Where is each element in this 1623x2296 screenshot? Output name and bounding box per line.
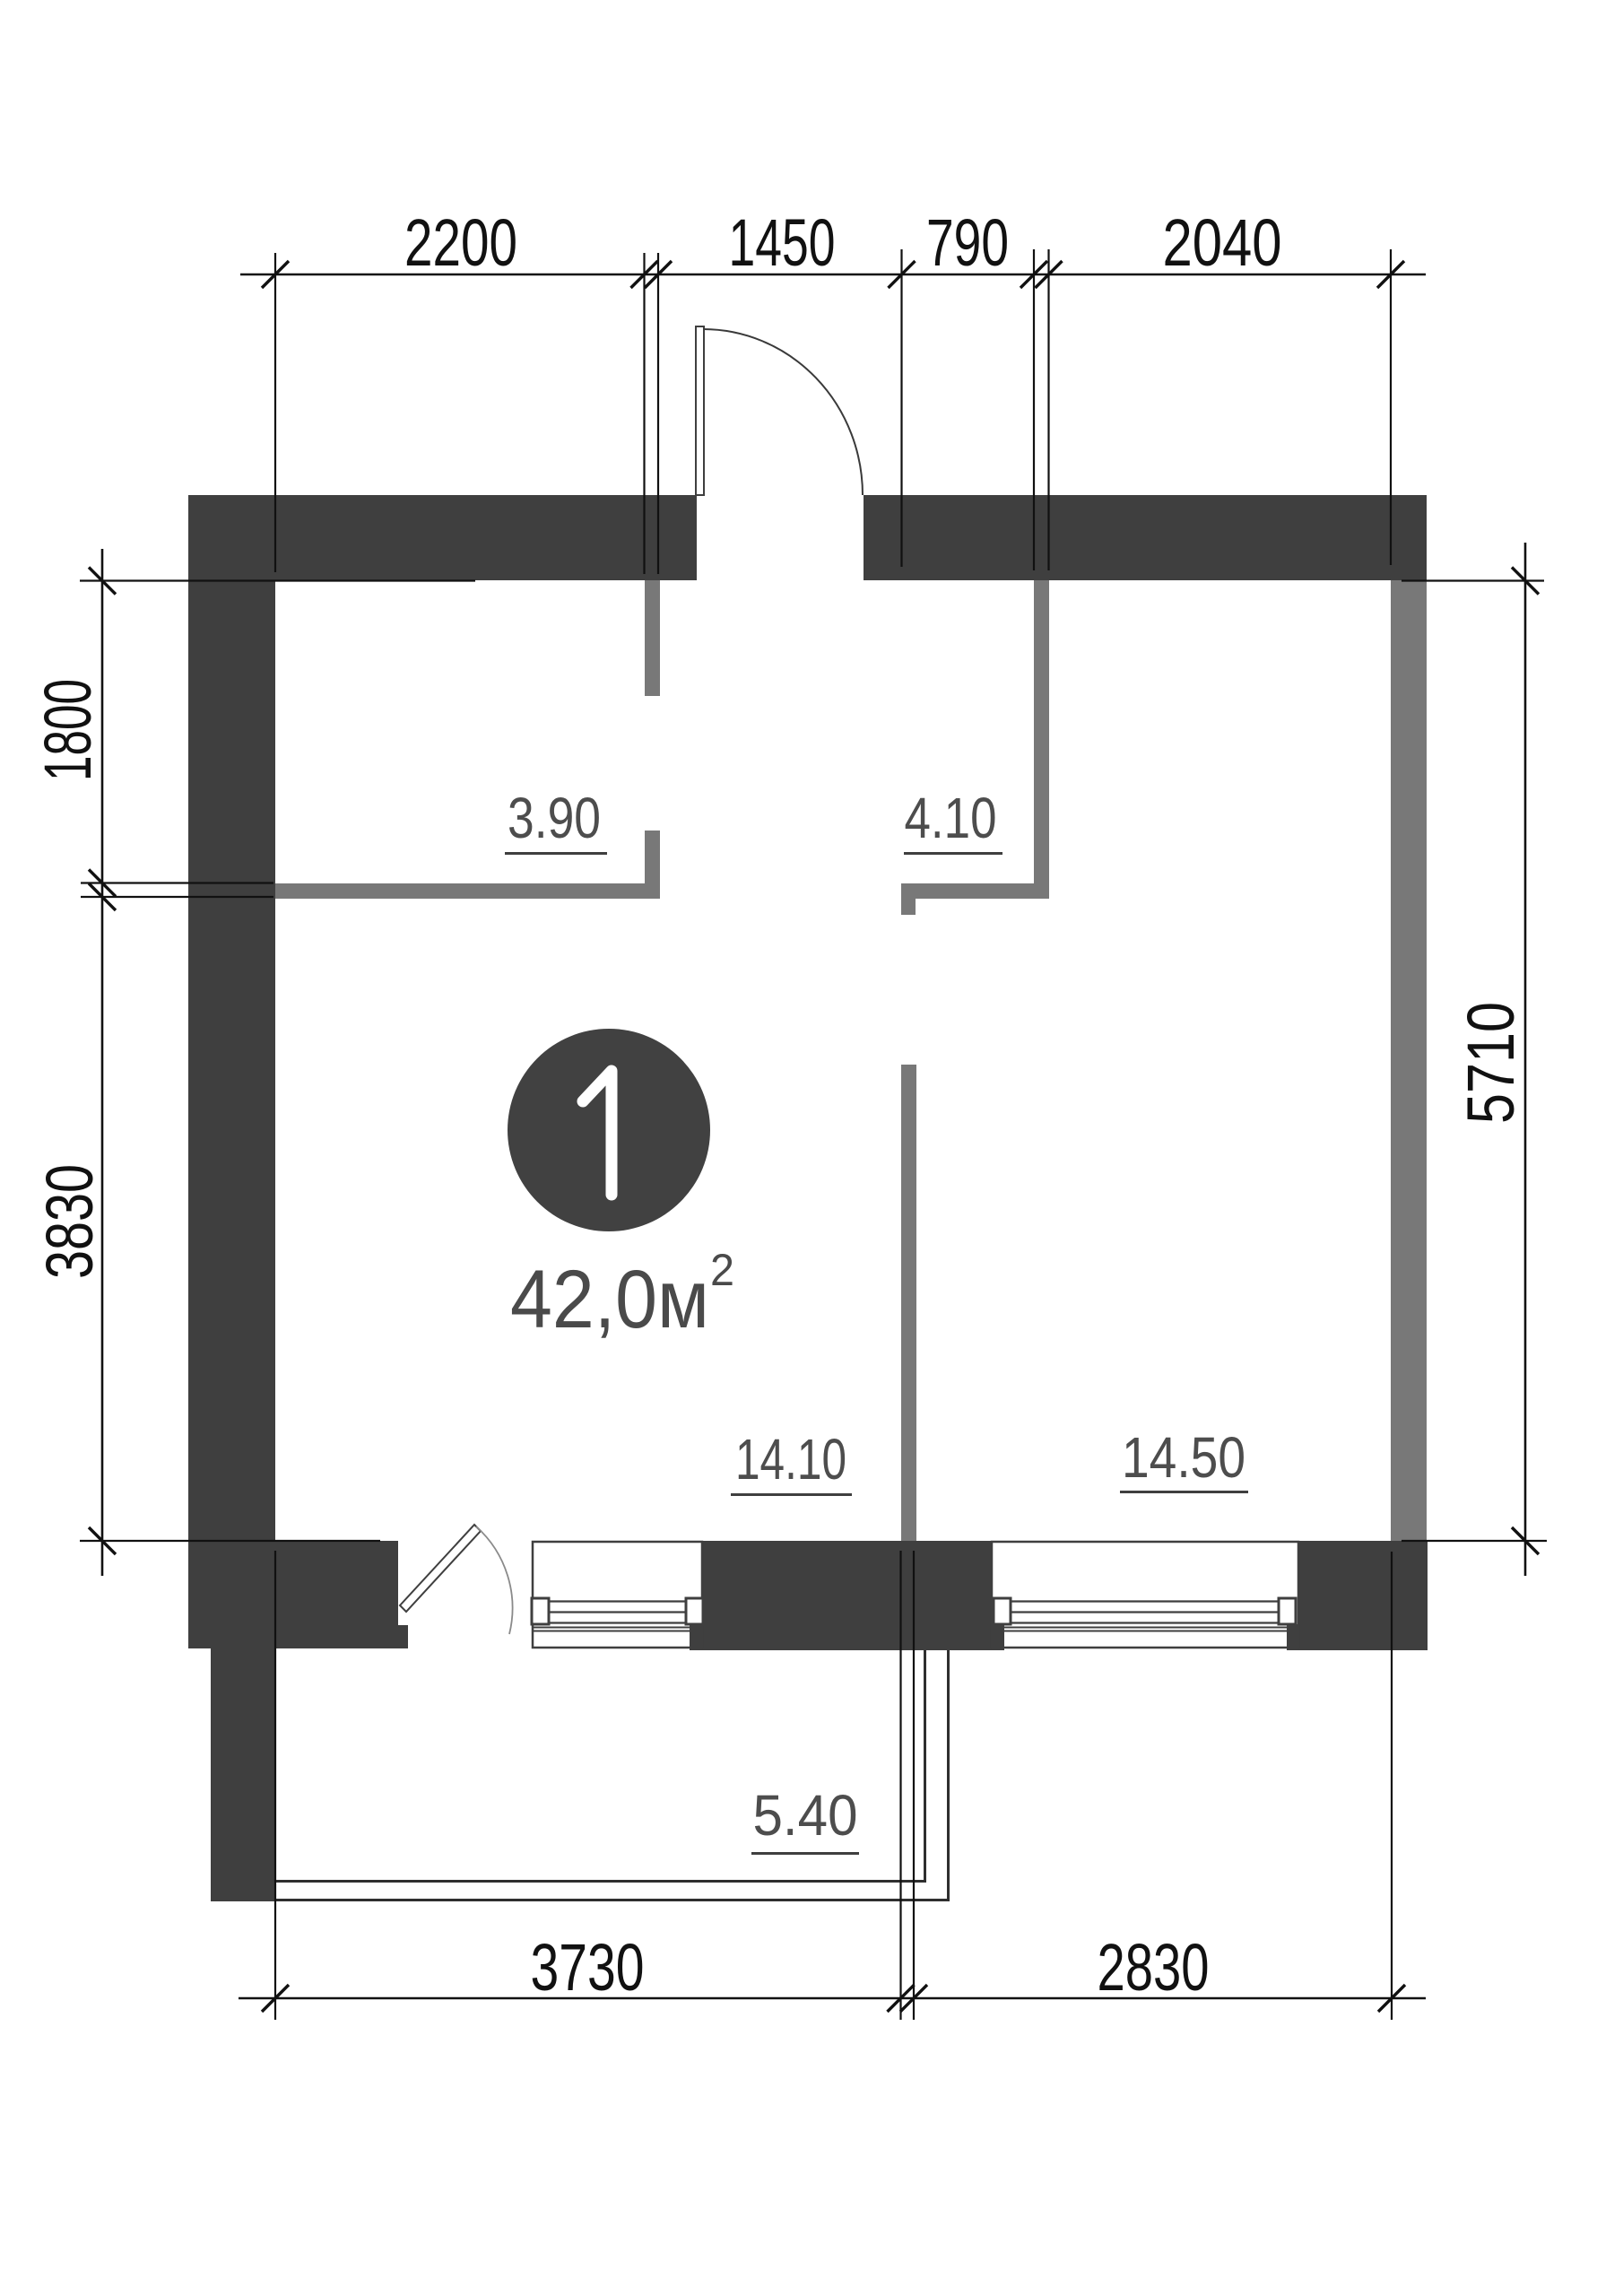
svg-text:3730: 3730 — [531, 1930, 645, 2005]
svg-text:5.40: 5.40 — [753, 1783, 858, 1848]
svg-text:2040: 2040 — [1163, 205, 1282, 280]
svg-text:14.10: 14.10 — [735, 1427, 846, 1492]
svg-text:790: 790 — [926, 205, 1009, 280]
svg-text:2: 2 — [710, 1245, 734, 1295]
svg-text:3.90: 3.90 — [508, 786, 601, 850]
svg-text:42,0м: 42,0м — [510, 1254, 709, 1345]
svg-text:3830: 3830 — [32, 1164, 107, 1279]
svg-text:1450: 1450 — [729, 205, 836, 280]
svg-text:2200: 2200 — [404, 205, 517, 280]
svg-text:2830: 2830 — [1098, 1930, 1210, 2005]
svg-text:1800: 1800 — [30, 679, 105, 781]
svg-text:5710: 5710 — [1454, 1002, 1528, 1124]
svg-text:4.10: 4.10 — [905, 786, 997, 850]
svg-text:14.50: 14.50 — [1122, 1425, 1245, 1490]
